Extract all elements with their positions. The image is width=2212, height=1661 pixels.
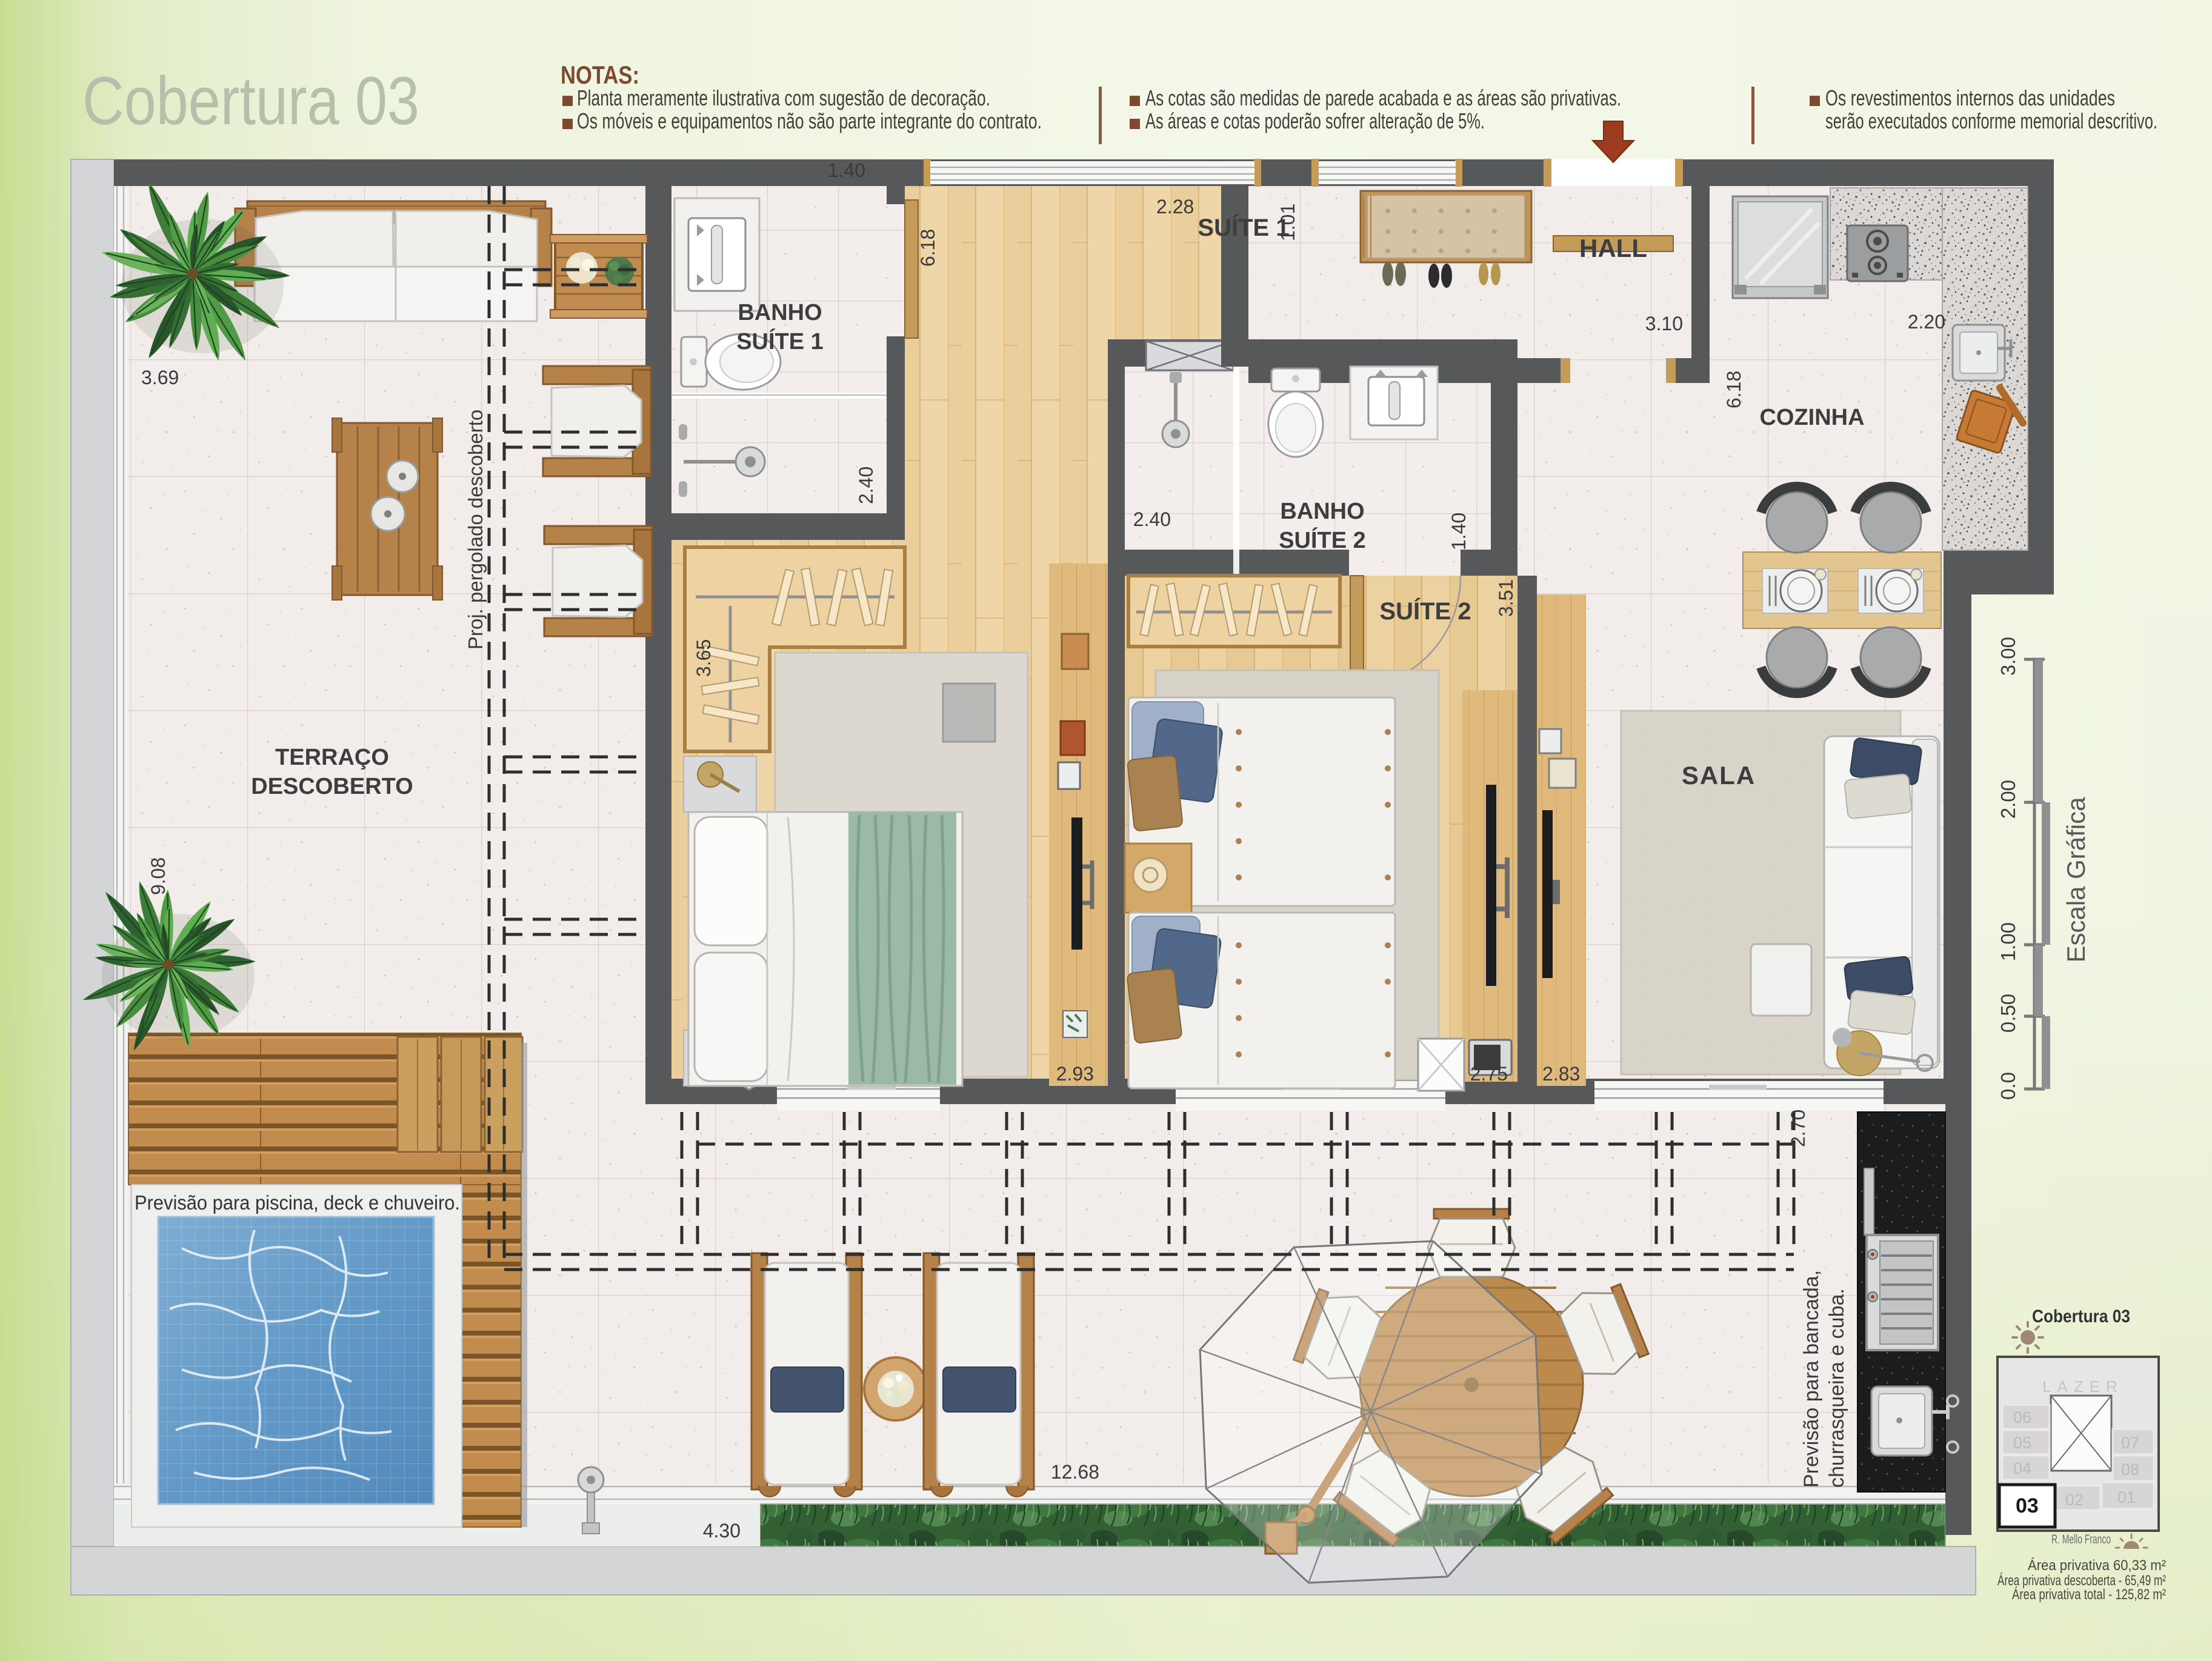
- svg-text:07: 07: [2121, 1434, 2139, 1452]
- svg-text:02: 02: [2065, 1491, 2084, 1509]
- svg-text:2.20: 2.20: [1908, 311, 1945, 333]
- svg-text:COZINHA: COZINHA: [1759, 405, 1864, 430]
- svg-text:2.00: 2.00: [1997, 780, 2019, 819]
- svg-text:serão executados conforme memo: serão executados conforme memorial descr…: [1825, 108, 2157, 133]
- svg-text:1.40: 1.40: [1448, 513, 1470, 550]
- svg-text:01: 01: [2117, 1488, 2136, 1506]
- svg-text:Área privativa total - 125,82: Área privativa total - 125,82 m²: [2012, 1586, 2166, 1603]
- svg-text:TERRAÇO: TERRAÇO: [275, 745, 389, 770]
- svg-text:2.70: 2.70: [1787, 1110, 1809, 1147]
- svg-text:NOTAS:: NOTAS:: [561, 61, 639, 89]
- svg-text:HALL: HALL: [1579, 234, 1647, 262]
- svg-text:BANHO: BANHO: [1280, 499, 1364, 524]
- svg-text:4.30: 4.30: [703, 1520, 741, 1542]
- svg-text:Escala Gráfica: Escala Gráfica: [2062, 797, 2090, 963]
- svg-text:2.28: 2.28: [1156, 196, 1194, 218]
- svg-text:As cotas são medidas de parede: As cotas são medidas de parede acabada e…: [1145, 85, 1621, 110]
- svg-text:3.51: 3.51: [1495, 579, 1517, 617]
- svg-text:Proj. pergolado descoberto: Proj. pergolado descoberto: [464, 410, 487, 650]
- svg-text:3.65: 3.65: [693, 639, 715, 677]
- svg-text:Os móveis e equipamentos não s: Os móveis e equipamentos não são parte i…: [577, 108, 1042, 133]
- svg-text:As áreas e cotas poderão sofre: As áreas e cotas poderão sofrer alteraçã…: [1145, 108, 1485, 133]
- svg-text:DESCOBERTO: DESCOBERTO: [251, 774, 413, 799]
- svg-text:3.00: 3.00: [1997, 637, 2019, 676]
- svg-text:2.40: 2.40: [855, 467, 877, 504]
- svg-text:1.00: 1.00: [1997, 922, 2019, 961]
- svg-text:04: 04: [2013, 1459, 2031, 1477]
- svg-text:05: 05: [2013, 1434, 2031, 1452]
- svg-text:2.40: 2.40: [1133, 508, 1171, 530]
- svg-text:0.0: 0.0: [1997, 1072, 2019, 1100]
- svg-text:Os revestimentos internos das: Os revestimentos internos das unidades: [1825, 85, 2115, 110]
- svg-text:1.40: 1.40: [828, 159, 865, 181]
- svg-text:Cobertura 03: Cobertura 03: [82, 63, 419, 139]
- svg-text:3.10: 3.10: [1645, 313, 1683, 335]
- svg-text:Planta meramente ilustrativa c: Planta meramente ilustrativa com sugestã…: [577, 85, 990, 110]
- svg-text:2.93: 2.93: [1056, 1063, 1094, 1085]
- svg-text:3.69: 3.69: [141, 367, 179, 388]
- svg-text:SALA: SALA: [1682, 761, 1756, 790]
- svg-text:Cobertura 03: Cobertura 03: [2032, 1306, 2130, 1326]
- svg-text:2.75: 2.75: [1470, 1063, 1508, 1085]
- svg-text:1.01: 1.01: [1277, 204, 1299, 241]
- svg-text:LAZER: LAZER: [2042, 1377, 2124, 1396]
- svg-text:Previsão para piscina, deck e: Previsão para piscina, deck e chuveiro.: [135, 1191, 460, 1214]
- svg-text:6.18: 6.18: [1723, 371, 1745, 408]
- svg-text:03: 03: [2016, 1494, 2039, 1517]
- svg-text:06: 06: [2013, 1408, 2031, 1426]
- svg-text:6.18: 6.18: [917, 229, 939, 267]
- svg-text:08: 08: [2121, 1460, 2139, 1479]
- svg-text:12.68: 12.68: [1051, 1461, 1099, 1483]
- svg-text:0.50: 0.50: [1997, 994, 2019, 1033]
- svg-text:SUÍTE 1: SUÍTE 1: [736, 328, 824, 355]
- svg-text:SUÍTE 2: SUÍTE 2: [1379, 597, 1471, 625]
- svg-text:BANHO: BANHO: [738, 300, 822, 325]
- svg-text:Área privativa 60,33 m²: Área privativa 60,33 m²: [2028, 1557, 2166, 1574]
- svg-text:R. Mello Franco: R. Mello Franco: [2051, 1533, 2111, 1546]
- svg-text:churrasqueira e cuba.: churrasqueira e cuba.: [1825, 1288, 1848, 1488]
- svg-text:SUÍTE 1: SUÍTE 1: [1198, 214, 1289, 241]
- svg-text:SUÍTE 2: SUÍTE 2: [1279, 527, 1366, 553]
- svg-text:2.83: 2.83: [1542, 1063, 1580, 1085]
- svg-text:9.08: 9.08: [147, 857, 169, 895]
- svg-text:Previsão para bancada,: Previsão para bancada,: [1800, 1270, 1823, 1488]
